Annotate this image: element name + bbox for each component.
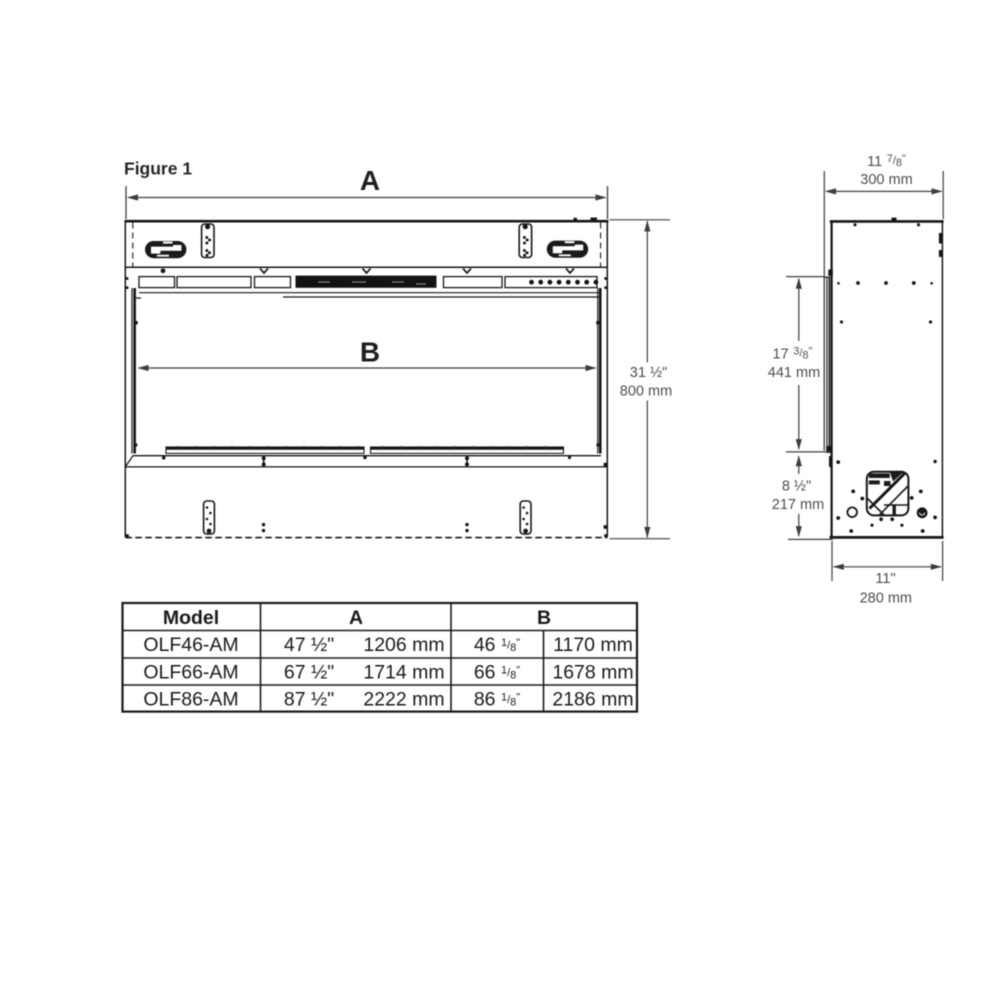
svg-text:87 ½": 87 ½" <box>284 689 334 711</box>
svg-text:217 mm: 217 mm <box>772 497 824 513</box>
svg-text:2222 mm: 2222 mm <box>363 689 444 711</box>
svg-text:OLF46-AM: OLF46-AM <box>143 634 238 656</box>
svg-text:1714 mm: 1714 mm <box>363 662 444 684</box>
svg-text:1678 mm: 1678 mm <box>552 662 633 684</box>
svg-text:Figure 1: Figure 1 <box>124 159 192 179</box>
svg-text:11": 11" <box>875 571 895 587</box>
svg-text:OLF66-AM: OLF66-AM <box>143 662 238 684</box>
svg-text:A: A <box>360 165 380 196</box>
svg-text:1170 mm: 1170 mm <box>553 634 633 656</box>
svg-text:31 ½": 31 ½" <box>630 365 667 381</box>
svg-text:A: A <box>349 607 363 629</box>
svg-text:441 mm: 441 mm <box>768 365 820 381</box>
svg-text:47 ½": 47 ½" <box>284 634 334 656</box>
svg-text:2186 mm: 2186 mm <box>552 689 633 711</box>
svg-text:280 mm: 280 mm <box>860 591 912 607</box>
svg-text:OLF86-AM: OLF86-AM <box>143 689 238 711</box>
svg-text:B: B <box>360 337 380 368</box>
svg-text:8 ½": 8 ½" <box>782 479 811 495</box>
svg-text:800 mm: 800 mm <box>620 384 672 400</box>
svg-text:300 mm: 300 mm <box>860 172 912 188</box>
svg-text:1206 mm: 1206 mm <box>363 634 444 656</box>
svg-text:B: B <box>537 607 551 629</box>
svg-text:67 ½": 67 ½" <box>284 662 334 684</box>
svg-text:Model: Model <box>163 607 219 629</box>
